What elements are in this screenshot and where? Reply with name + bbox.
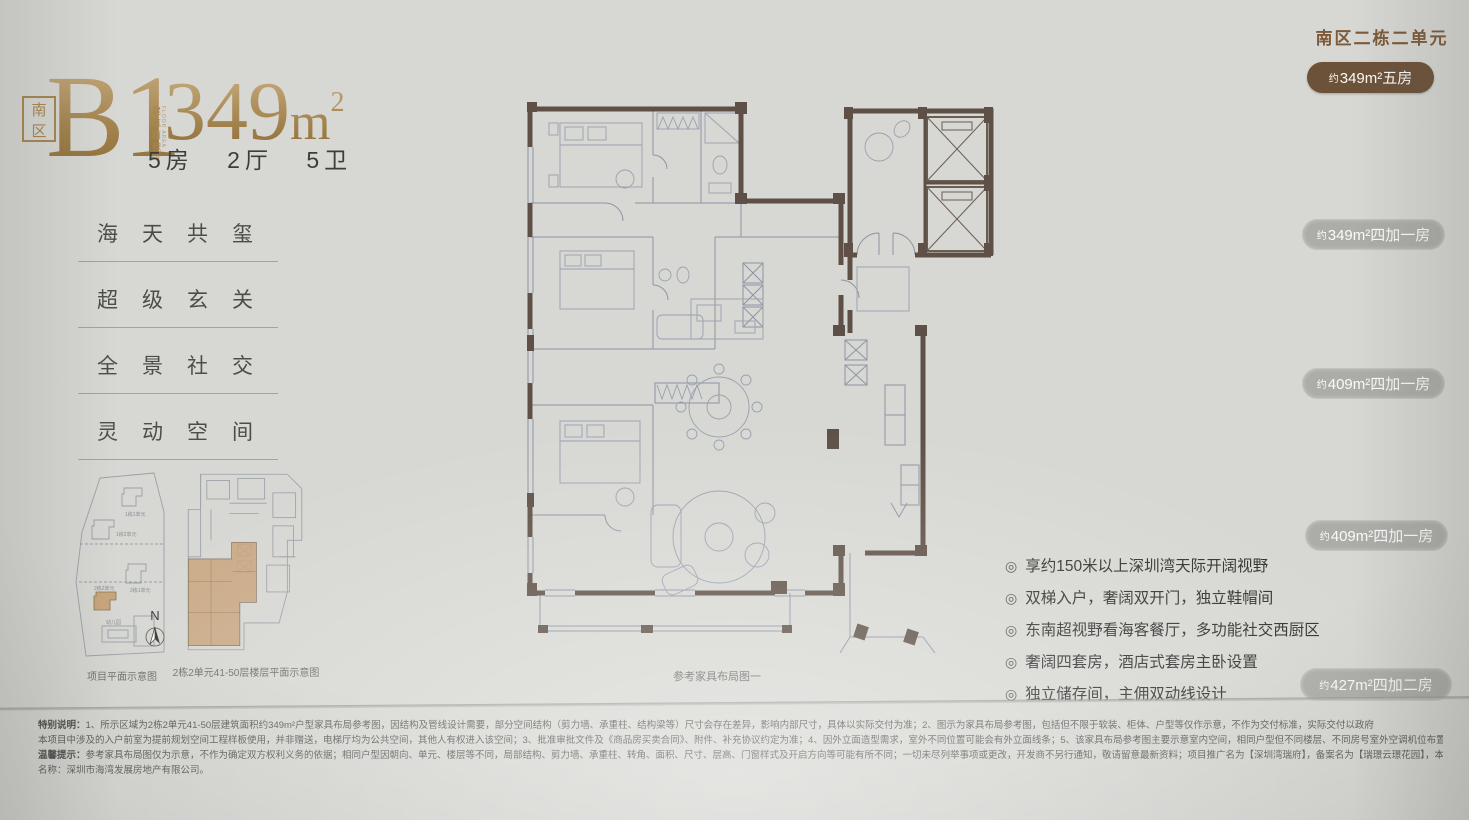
- area-unit-sup: 2: [330, 87, 344, 118]
- selling-point: ◎ 东南超视野看海客餐厅，多功能社交西厨区: [1005, 620, 1345, 641]
- unit-badge-409-4plus1-b[interactable]: 约 409m²四加一房: [1305, 520, 1448, 551]
- plan-caption: 参考家具布局图一: [617, 668, 817, 684]
- disclaimer-lead: 温馨提示：: [38, 750, 86, 761]
- disclaimer-text: 名称：深圳市海湾发展房地产有限公司。: [38, 765, 209, 776]
- feature-item: 超级玄关: [78, 284, 278, 328]
- selling-point-text: 奢阔四套房，酒店式套房主卧设置: [1025, 652, 1258, 673]
- selling-point: ◎ 享约150米以上深圳湾天际开阔视野: [1005, 556, 1345, 577]
- compass-needle-icon: [144, 624, 166, 648]
- disclaimer-block: 特别说明：1、所示区域为2栋2单元41-50层建筑面积约349m²户型家具布局参…: [38, 718, 1443, 778]
- disclaimer-lead: 特别说明：: [38, 720, 86, 731]
- site-label-1-2: 1栋2单元: [116, 531, 137, 538]
- selling-point: ◎ 奢阔四套房，酒店式套房主卧设置: [1005, 652, 1345, 673]
- disclaimer-line: 特别说明：1、所示区域为2栋2单元41-50层建筑面积约349m²户型家具布局参…: [38, 718, 1443, 733]
- selling-point-text: 享约150米以上深圳湾天际开阔视野: [1025, 556, 1268, 577]
- bullseye-bullet-icon: ◎: [1005, 620, 1017, 641]
- feature-list: 海天共玺 超级玄关 全景社交 灵动空间: [78, 218, 278, 482]
- badge-label: 427m²四加二房: [1330, 674, 1433, 695]
- site-label-2-2: 2栋2单元: [94, 585, 115, 592]
- disclaimer-text: 本项目中涉及的入户前室为提前规划空间工程样板使用，并非赠送，电梯厅均为公共空间，…: [38, 735, 1443, 746]
- site-label-2-1: 2栋1单元: [130, 587, 151, 594]
- badge-label: 409m²四加一房: [1328, 373, 1431, 394]
- zone-badge-label: 南区: [31, 100, 47, 142]
- selling-point-text: 双梯入户，奢阔双开门，独立鞋帽间: [1025, 588, 1273, 609]
- bullseye-bullet-icon: ◎: [1005, 588, 1017, 609]
- unit-badge-349-5room[interactable]: 约 349m²五房: [1307, 62, 1434, 93]
- floor-plate-highlight-unit: [188, 542, 256, 645]
- bullseye-bullet-icon: ◎: [1005, 556, 1017, 577]
- feature-text: 灵动空间: [97, 421, 277, 444]
- bullseye-bullet-icon: ◎: [1005, 652, 1017, 673]
- poster-screen: 南区 B1 建筑面积 FLOOR AREA 约 349m2 5房 2厅 5卫 海…: [0, 0, 1469, 820]
- compass-north-label: N: [142, 608, 168, 623]
- floor-plate-caption: 2栋2单元41-50层楼层平面示意图: [166, 664, 326, 679]
- selling-point-text: 东南超视野看海客餐厅，多功能社交西厨区: [1025, 620, 1320, 641]
- badge-prefix: 约: [1320, 528, 1330, 543]
- selling-points-list: ◎ 享约150米以上深圳湾天际开阔视野 ◎ 双梯入户，奢阔双开门，独立鞋帽间 ◎…: [1005, 556, 1345, 716]
- badge-label: 409m²四加一房: [1331, 525, 1434, 546]
- feature-text: 全景社交: [97, 355, 277, 378]
- feature-item: 海天共玺: [78, 218, 278, 262]
- site-label-1-1: 1栋1单元: [125, 511, 146, 518]
- selling-point: ◎ 双梯入户，奢阔双开门，独立鞋帽间: [1005, 588, 1345, 609]
- feature-text: 海天共玺: [97, 223, 277, 246]
- disclaimer-line: 温馨提示：参考家具布局图仅为示意，不作为确定双方权利义务的依据；相同户型因朝向、…: [38, 748, 1443, 763]
- main-floor-plan: [505, 85, 1005, 670]
- feature-item: 全景社交: [78, 350, 278, 394]
- site-plan-highlight-building: [94, 592, 116, 610]
- badge-prefix: 约: [1317, 376, 1327, 391]
- right-panel-title: 南区二栋二单元: [1302, 24, 1462, 49]
- feature-item: 灵动空间: [78, 416, 278, 460]
- feature-text: 超级玄关: [97, 289, 277, 312]
- badge-prefix: 约: [1317, 227, 1327, 242]
- unit-spec: 5房 2厅 5卫: [148, 141, 352, 175]
- badge-label: 349m²五房: [1340, 67, 1413, 88]
- badge-label: 349m²四加一房: [1328, 224, 1431, 245]
- site-label-kindergarten: 幼儿园: [106, 619, 121, 626]
- disclaimer-text: 参考家具布局图仅为示意，不作为确定双方权利义务的依据；相同户型因朝向、单元、楼层…: [86, 750, 1443, 761]
- unit-badge-349-4plus1[interactable]: 约 349m²四加一房: [1302, 219, 1445, 250]
- floor-plate-diagram: [180, 468, 308, 656]
- disclaimer-line: 名称：深圳市海湾发展房地产有限公司。: [38, 763, 1443, 778]
- disclaimer-line: 本项目中涉及的入户前室为提前规划空间工程样板使用，并非赠送，电梯厅均为公共空间，…: [38, 733, 1443, 748]
- compass: N: [142, 608, 168, 653]
- disclaimer-text: 1、所示区域为2栋2单元41-50层建筑面积约349m²户型家具布局参考图，因结…: [86, 720, 1374, 731]
- unit-badge-409-4plus1-a[interactable]: 约 409m²四加一房: [1302, 368, 1445, 399]
- badge-prefix: 约: [1329, 70, 1339, 85]
